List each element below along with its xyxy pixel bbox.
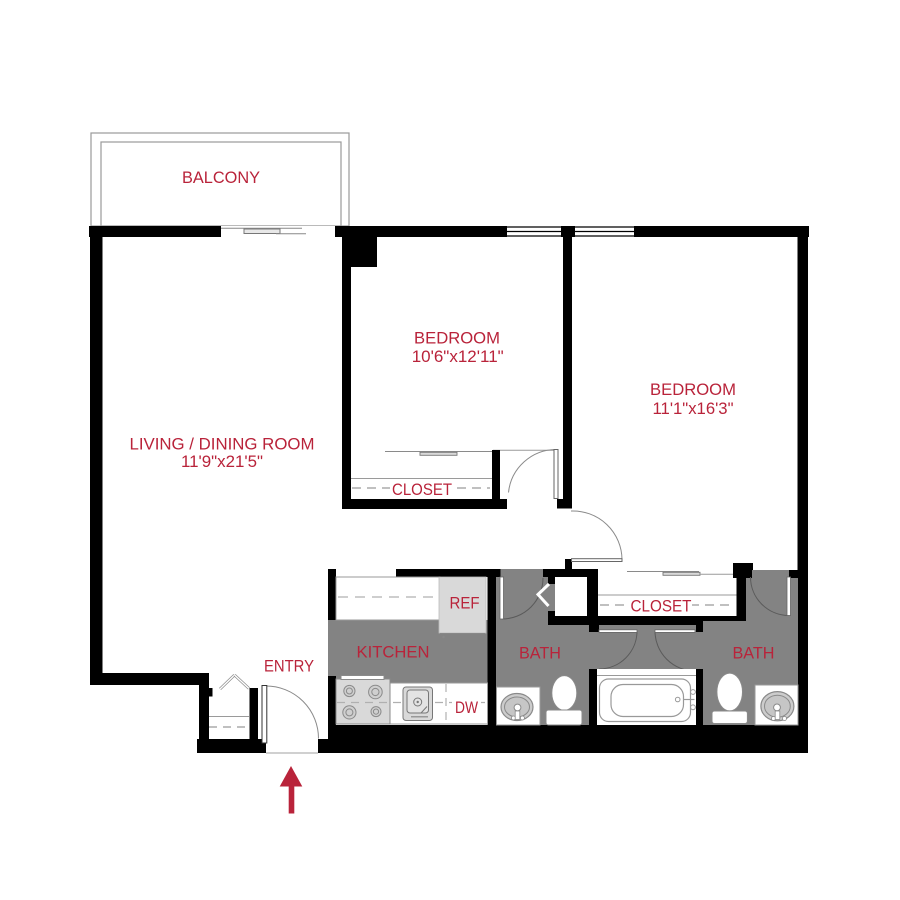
svg-text:LIVING / DINING ROOM: LIVING / DINING ROOM [130,435,315,454]
svg-text:BALCONY: BALCONY [182,168,260,187]
svg-text:BEDROOM: BEDROOM [414,329,500,348]
svg-text:BATH: BATH [733,644,775,663]
svg-text:ENTRY: ENTRY [264,657,314,676]
svg-text:BATH: BATH [519,644,561,663]
svg-text:10'6"x12'11": 10'6"x12'11" [412,347,504,366]
svg-text:11'1"x16'3": 11'1"x16'3" [653,399,734,418]
svg-text:CLOSET: CLOSET [392,480,452,499]
svg-text:CLOSET: CLOSET [631,597,692,616]
svg-text:REF: REF [450,594,480,613]
svg-text:BEDROOM: BEDROOM [650,380,736,399]
svg-text:KITCHEN: KITCHEN [357,643,430,662]
svg-text:11'9"x21'5": 11'9"x21'5" [181,452,263,471]
svg-text:DW: DW [455,698,478,717]
